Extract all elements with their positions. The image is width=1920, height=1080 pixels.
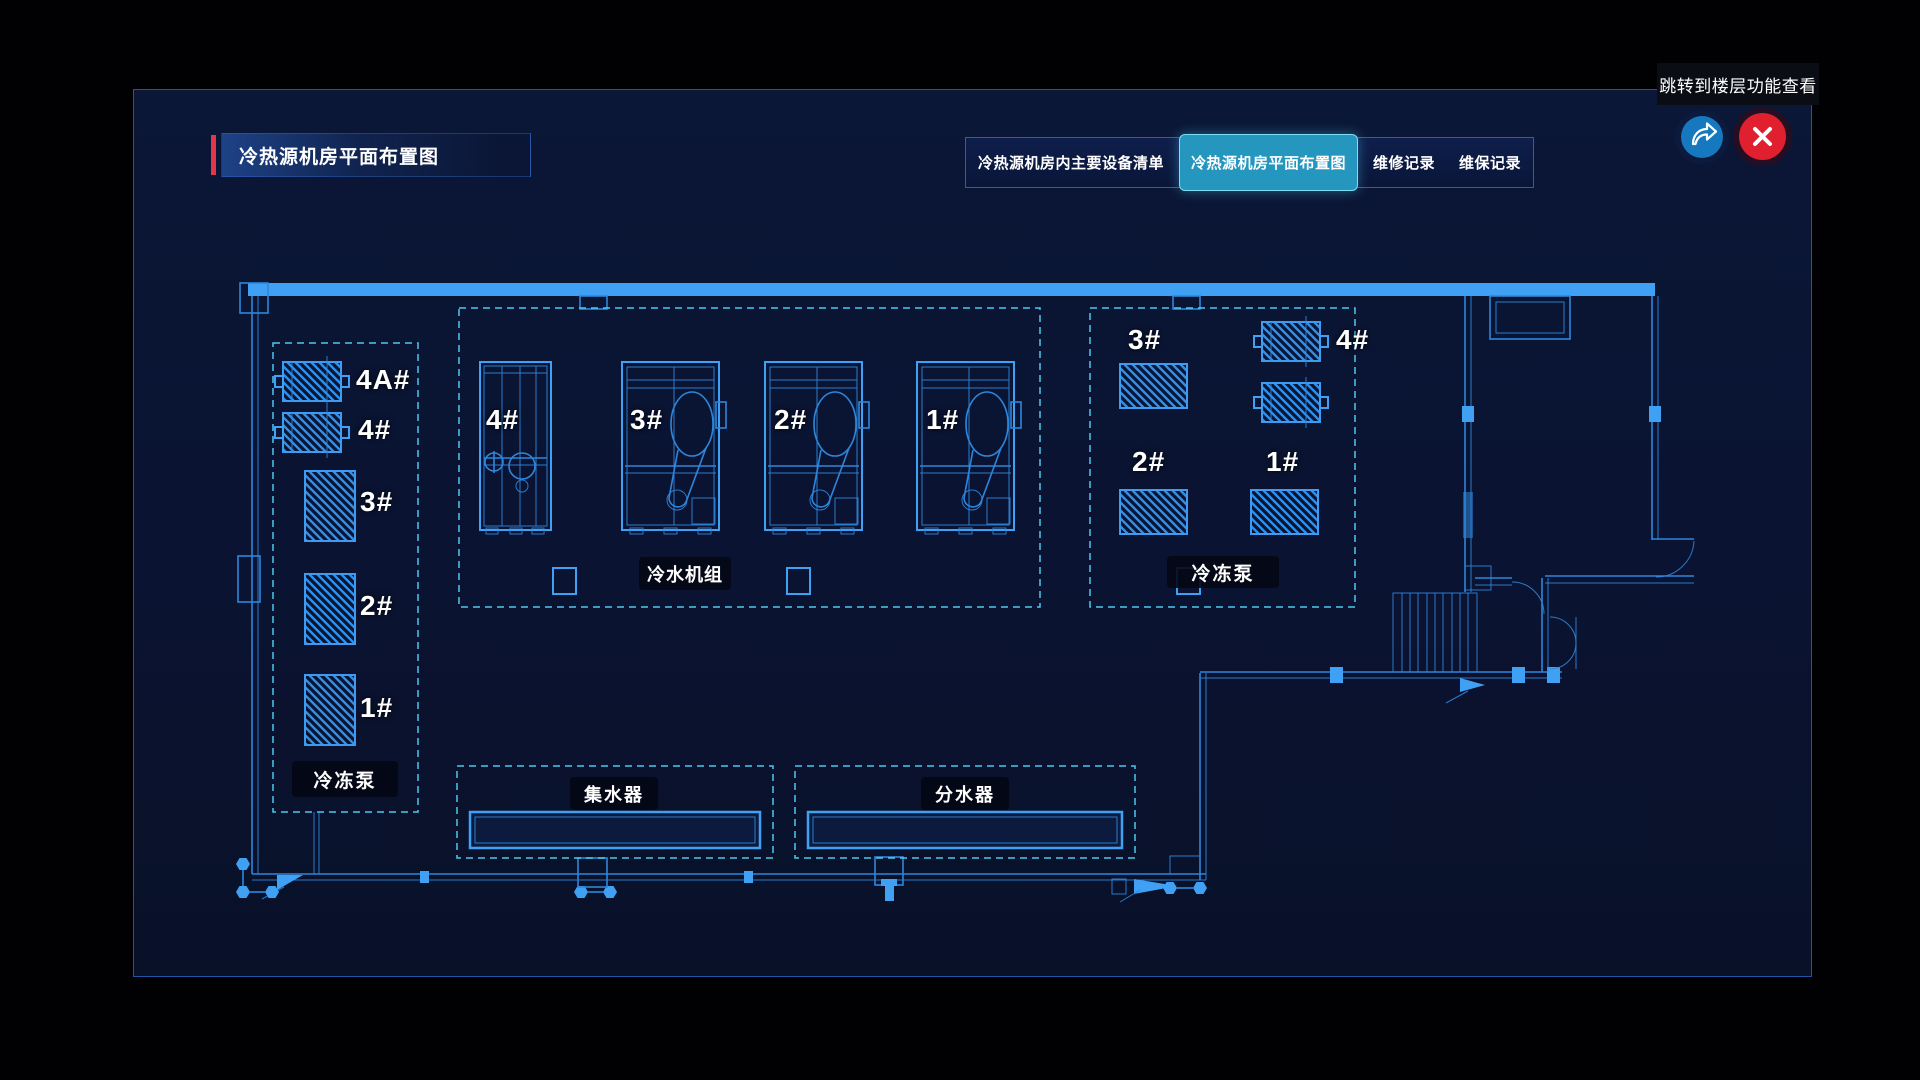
pump-left-1 [305,675,355,745]
floorplan-drawing [0,0,1920,1080]
pump-left-4A [275,356,349,407]
pump-left-4 [275,407,349,458]
pump-left-2 [305,574,355,644]
unit-label-left-1: 1# [360,694,393,722]
unit-label-chiller-1: 1# [926,406,959,434]
unit-label-right-4: 4# [1336,326,1369,354]
group-label-left-pumps: 冷冻泵 [292,761,398,797]
chiller-group [480,362,1021,534]
door-arc-right-room [1656,541,1694,577]
left-pump-group [275,356,355,745]
chiller-2 [765,362,869,534]
pump-right-1 [1251,490,1318,534]
staircase [1393,593,1477,672]
unit-label-left-4A: 4A# [356,366,410,394]
unit-label-right-3: 3# [1128,326,1161,354]
group-label-collector: 集水器 [570,777,658,810]
door-symbol-southwest [277,875,303,890]
pump-right-2 [1120,490,1187,534]
pump-right-4b [1254,377,1328,428]
unit-label-left-3: 3# [360,488,393,516]
unit-label-chiller-4: 4# [486,406,519,434]
door-arc-corridor [1512,582,1544,614]
screen: 冷热源机房平面布置图 冷热源机房内主要设备清单 冷热源机房平面布置图 维修记录 … [0,0,1920,1080]
chiller-3 [622,362,726,534]
chiller-4 [480,362,551,534]
unit-label-left-4: 4# [358,416,391,444]
pump-right-4a [1254,316,1328,367]
pump-right-3 [1120,364,1187,408]
chiller-1 [917,362,1021,534]
double-door-arc-bottom [1550,643,1576,669]
unit-label-left-2: 2# [360,592,393,620]
unit-label-chiller-3: 3# [630,406,663,434]
unit-label-right-1: 1# [1266,448,1299,476]
group-label-chillers: 冷水机组 [639,557,731,590]
door-symbol-stairs [1460,678,1485,692]
pump-left-3 [305,471,355,541]
group-label-distributor: 分水器 [921,777,1009,810]
distributor-vessel [808,812,1122,848]
collector-vessel [470,812,760,848]
unit-label-right-2: 2# [1132,448,1165,476]
group-label-right-pumps: 冷冻泵 [1167,556,1279,588]
double-door-arc-top [1550,617,1576,643]
unit-label-chiller-2: 2# [774,406,807,434]
